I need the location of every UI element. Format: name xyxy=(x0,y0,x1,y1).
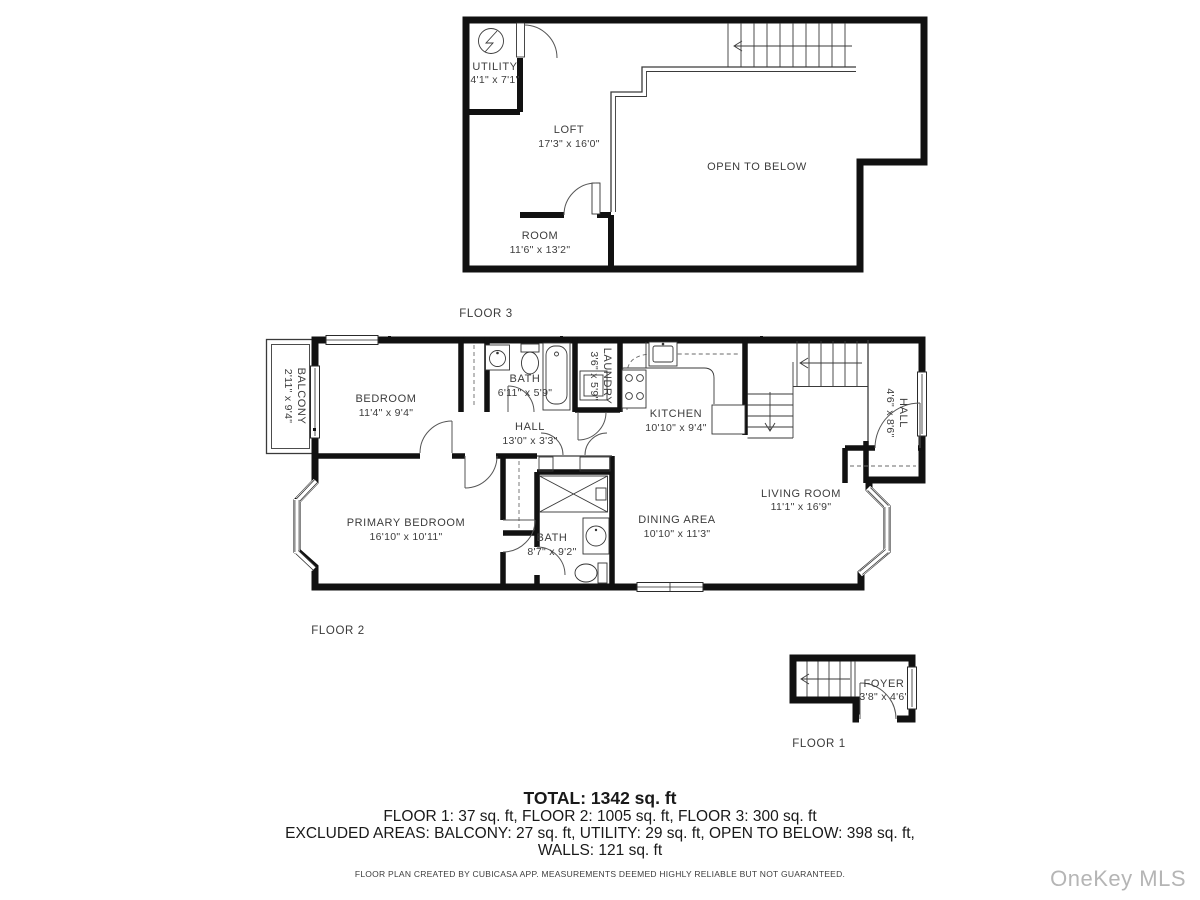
floor2-label: FLOOR 2 xyxy=(311,625,364,637)
room-dims-room: 11'6" x 13'2" xyxy=(510,244,571,256)
floor2-stairs xyxy=(748,340,869,441)
room-label-balcony-group: BALCONY 2'11" x 9'4" xyxy=(282,368,307,425)
room-label-open-to-below: OPEN TO BELOW xyxy=(707,161,807,173)
utility-door-arc xyxy=(524,25,557,58)
stairs-arrow-floor1 xyxy=(801,674,850,684)
room-dims-foyer: 3'8" x 4'6" xyxy=(859,691,908,703)
toilet-2 xyxy=(575,564,597,582)
room-door-leaf xyxy=(592,183,600,214)
room-dims-kitchen: 10'10" x 9'4" xyxy=(645,422,707,434)
room-label-foyer: FOYER xyxy=(864,678,905,690)
room-label-utility: UTILITY xyxy=(472,61,517,73)
floor3-doors xyxy=(517,23,601,215)
room-label-bath-bottom: BATH xyxy=(537,532,568,544)
toilet-tank-2 xyxy=(598,563,607,583)
room-label-dining-area: DINING AREA xyxy=(638,514,716,526)
room-door-arc xyxy=(564,183,596,215)
bath-sink-2 xyxy=(583,518,609,554)
room-label-bath-top: BATH xyxy=(510,373,541,385)
open-to-below-railing xyxy=(611,67,856,212)
living-room-bay-window xyxy=(860,488,889,575)
bedroom-door-arc xyxy=(420,421,452,453)
room-label-balcony: BALCONY xyxy=(295,368,307,425)
room-dims-primary-bedroom: 16'10" x 10'11" xyxy=(370,531,443,543)
floor2-plan: BEDROOM 11'4" x 9'4" BATH 6'11" x 5'9" L… xyxy=(267,336,927,638)
room-label-hall-right: HALL xyxy=(897,398,909,428)
stairs-down-arrow xyxy=(765,392,775,431)
room-label-room: ROOM xyxy=(522,230,559,242)
room-dims-hall-center: 13'0" x 3'3" xyxy=(502,435,557,447)
floorplan-page: UTILITY 4'1" x 7'1" LOFT 17'3" x 16'0" O… xyxy=(0,0,1200,900)
room-dims-balcony: 2'11" x 9'4" xyxy=(282,369,294,424)
room-label-loft: LOFT xyxy=(554,124,585,136)
bath-bottom-fixtures xyxy=(540,476,610,583)
floor3-plan: UTILITY 4'1" x 7'1" LOFT 17'3" x 16'0" O… xyxy=(459,18,924,320)
electrical-panel-icon xyxy=(479,29,504,54)
kitchen-counter xyxy=(712,405,745,434)
total-area-text: TOTAL: 1342 sq. ft xyxy=(0,788,1200,809)
room-dims-utility: 4'1" x 7'1" xyxy=(470,74,519,86)
primary-bedroom-door-arc xyxy=(465,456,497,488)
toilet xyxy=(522,352,539,374)
room-label-hall-right-group: HALL 4'6" x 8'6" xyxy=(884,388,909,437)
laundry-door-arc xyxy=(578,412,606,440)
room-dims-laundry: 3'6" x 5'9" xyxy=(588,351,600,400)
room-label-laundry-group: LAUNDRY 3'6" x 5'9" xyxy=(588,348,613,405)
floor1-plan: FOYER 3'8" x 4'6" FLOOR 1 xyxy=(792,656,916,750)
room-label-laundry: LAUNDRY xyxy=(601,348,613,405)
floor-areas-text: FLOOR 1: 37 sq. ft, FLOOR 2: 1005 sq. ft… xyxy=(0,808,1200,826)
toilet-tank xyxy=(521,344,539,352)
room-dims-bath-top: 6'11" x 5'9" xyxy=(498,387,553,399)
kitchen-fixtures xyxy=(622,342,745,434)
mls-watermark: OneKey MLS xyxy=(1050,866,1186,892)
floor1-stairs xyxy=(801,661,855,697)
room-dims-bath-bottom: 8'7" x 9'2" xyxy=(527,546,576,558)
utility-door-leaf xyxy=(517,23,525,57)
room-label-hall-center: HALL xyxy=(515,421,545,433)
floorplan-drawing: UTILITY 4'1" x 7'1" LOFT 17'3" x 16'0" O… xyxy=(0,0,1200,900)
disclaimer-text: FLOOR PLAN CREATED BY CUBICASA APP. MEAS… xyxy=(0,869,1200,879)
room-dims-bedroom: 11'4" x 9'4" xyxy=(359,407,414,419)
room-dims-living-room: 11'1" x 16'9" xyxy=(771,501,832,513)
floor3-stairs xyxy=(728,23,852,67)
room-label-primary-bedroom: PRIMARY BEDROOM xyxy=(347,517,466,529)
room-dims-dining-area: 10'10" x 11'3" xyxy=(644,528,711,540)
room-label-living-room: LIVING ROOM xyxy=(761,488,841,500)
excluded-areas-text: EXCLUDED AREAS: BALCONY: 27 sq. ft, UTIL… xyxy=(0,825,1200,843)
room-dims-loft: 17'3" x 16'0" xyxy=(538,138,600,150)
floor1-label: FLOOR 1 xyxy=(792,738,845,750)
floor3-label: FLOOR 3 xyxy=(459,308,512,320)
walls-area-text: WALLS: 121 sq. ft xyxy=(0,842,1200,860)
room-label-kitchen: KITCHEN xyxy=(650,408,702,420)
room-dims-hall-right: 4'6" x 8'6" xyxy=(884,388,896,437)
room-label-bedroom: BEDROOM xyxy=(355,393,416,405)
closet-door-arc-right xyxy=(585,433,607,455)
